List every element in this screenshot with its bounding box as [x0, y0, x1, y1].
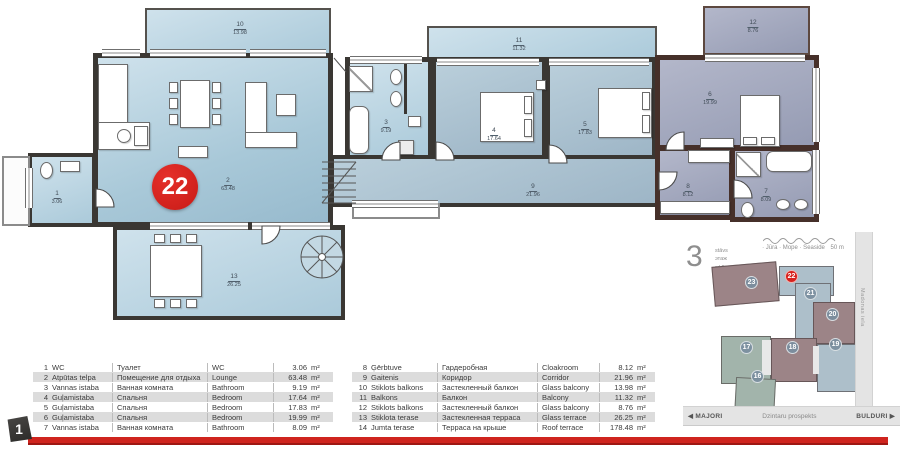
chair — [154, 299, 165, 308]
legend-room-number: 14 — [352, 423, 367, 432]
legend-room-number: 3 — [33, 383, 48, 392]
chair — [212, 82, 221, 93]
room-label-6: 619.99 — [703, 84, 717, 107]
legend-room-number: 4 — [33, 393, 48, 402]
chair — [170, 299, 181, 308]
legend-area-unit: m² — [635, 423, 651, 432]
bathtub-icon — [766, 151, 812, 172]
left-arrow-icon: ◀ — [688, 413, 693, 420]
mm-unit-22[interactable]: 22 — [785, 270, 798, 283]
legend-area-unit: m² — [309, 403, 325, 412]
legend-room-number: 9 — [352, 373, 367, 382]
legend-area-unit: m² — [635, 413, 651, 422]
legend-name-lv: WC — [48, 363, 112, 372]
legend-name-lv: Atpūtas telpa — [48, 373, 112, 382]
legend-row: 12 Stiklots balkons Застекленный балкон … — [352, 402, 655, 412]
pillow — [524, 119, 532, 137]
mm-unit-18[interactable]: 18 — [786, 341, 799, 354]
legend-name-en: Glass balcony — [537, 383, 599, 392]
nightstand — [536, 80, 546, 90]
legend-area: 17.83 — [273, 403, 309, 412]
wardrobe — [688, 150, 730, 163]
room-bedroom-6 — [655, 55, 819, 150]
street-vertical: Madonas iela — [855, 232, 873, 408]
legend-room-number: 8 — [352, 363, 367, 372]
legend-name-en: Glass terrace — [537, 413, 599, 422]
legend-area-unit: m² — [309, 373, 325, 382]
window — [437, 58, 539, 66]
page-tab[interactable]: 1 — [6, 416, 32, 442]
mm-unit-23[interactable]: 23 — [745, 276, 758, 289]
legend-name-lv: Vannas istaba — [48, 383, 112, 392]
mm-unit-20[interactable]: 20 — [826, 308, 839, 321]
legend-name-lv: Jumta terase — [367, 423, 437, 432]
legend-area: 8.76 — [599, 403, 635, 412]
legend-area: 8.09 — [273, 423, 309, 432]
legend-row: 9 Gaitenis Коридор Corridor 21.96 m² — [352, 372, 655, 382]
legend-name-en: Bathroom — [207, 383, 273, 392]
legend-area: 63.48 — [273, 373, 309, 382]
window — [252, 222, 330, 230]
sea-names: · Jūra · Море · Seaside — [762, 245, 825, 251]
legend-name-lv: Guļamistaba — [48, 393, 112, 402]
legend-row: 3 Vannas istaba Ванная комната Bathroom … — [33, 382, 333, 392]
legend-name-lv: Stiklota terase — [367, 413, 437, 422]
legend-name-ru: Коридор — [437, 373, 537, 382]
apartment-number-badge[interactable]: 22 — [152, 164, 198, 210]
window — [352, 200, 438, 208]
floor-plan-page: 13.06 263.48 39.19 417.64 517.83 619.99 … — [0, 0, 900, 452]
window — [812, 68, 820, 142]
mm-gap — [762, 340, 771, 375]
legend-name-ru: Ванная комната — [112, 423, 207, 432]
legend-name-en: Balcony — [537, 393, 599, 402]
pillow — [743, 137, 757, 145]
bidet-icon — [390, 91, 402, 107]
legend-room-number: 6 — [33, 413, 48, 422]
legend-room-number: 13 — [352, 413, 367, 422]
toilet-icon — [741, 202, 754, 218]
legend-name-en: Roof terrace — [537, 423, 599, 432]
legend-name-lv: Vannas istaba — [48, 423, 112, 432]
legend-name-lv: Guļamistaba — [48, 413, 112, 422]
sink-icon — [776, 199, 790, 210]
legend-area-unit: m² — [309, 413, 325, 422]
mm-unit-19[interactable]: 19 — [829, 338, 842, 351]
window — [102, 49, 140, 57]
legend-area-unit: m² — [309, 383, 325, 392]
legend-name-en: Lounge — [207, 373, 273, 382]
room-label-5: 517.83 — [578, 114, 592, 137]
mm-building-19 — [817, 344, 857, 392]
legend-area: 178.48 — [599, 423, 635, 432]
room-label-1: 13.06 — [52, 183, 63, 206]
pillow — [642, 115, 650, 133]
right-arrow-icon: ▶ — [890, 413, 895, 420]
sink-icon — [794, 199, 808, 210]
floor-number: 3 — [686, 242, 703, 272]
legend-area-unit: m² — [635, 383, 651, 392]
legend-row: 14 Jumta terase Терраса на крыше Roof te… — [352, 422, 655, 432]
legend-row: 11 Balkons Балкон Balcony 11.32 m² — [352, 392, 655, 402]
window — [25, 168, 33, 208]
mm-unit-17[interactable]: 17 — [740, 341, 753, 354]
sea-wave-icon — [763, 236, 843, 244]
window — [150, 49, 246, 57]
room-label-4: 417.64 — [487, 120, 501, 143]
legend-table-right: 8 Ģērbtuve Гардеробная Cloakroom 8.12 m²… — [352, 362, 655, 432]
window — [150, 222, 248, 230]
room-label-12: 128.76 — [747, 12, 758, 35]
legend-name-ru: Помещение для отдыха — [112, 373, 207, 382]
chair — [169, 82, 178, 93]
room-label-8: 88.12 — [683, 176, 694, 199]
mm-unit-16[interactable]: 16 — [751, 370, 764, 383]
mm-gap — [813, 346, 819, 374]
chair — [212, 98, 221, 109]
room-label-7: 78.09 — [761, 181, 772, 204]
street-horizontal: ◀ MAJORI Dzintaru prospekts BULDURI ▶ — [683, 406, 900, 426]
legend-room-number: 7 — [33, 423, 48, 432]
mm-unit-21[interactable]: 21 — [804, 287, 817, 300]
legend-row: 1 WC Туалет WC 3.06 m² — [33, 362, 333, 372]
legend-name-ru: Балкон — [437, 393, 537, 402]
window — [250, 49, 326, 57]
legend-room-number: 2 — [33, 373, 48, 382]
legend-name-ru: Застекленный балкон — [437, 383, 537, 392]
legend-table-left: 1 WC Туалет WC 3.06 m² 2 Atpūtas telpa П… — [33, 362, 333, 432]
legend-name-en: Bathroom — [207, 423, 273, 432]
legend-area-unit: m² — [635, 403, 651, 412]
chair — [170, 234, 181, 243]
site-minimap: 3 stāvs этаж rd floor · Jūra · Море · Se… — [683, 228, 900, 424]
legend-area: 26.25 — [599, 413, 635, 422]
legend-area-unit: m² — [309, 423, 325, 432]
legend-name-en: Bedroom — [207, 413, 273, 422]
partition-wall — [404, 64, 407, 114]
legend-name-lv: Stiklots balkons — [367, 403, 437, 412]
pillow — [524, 96, 532, 114]
toilet-icon — [40, 162, 53, 179]
stove-icon — [134, 126, 148, 146]
legend-name-en: Bedroom — [207, 393, 273, 402]
terrace-table — [150, 245, 202, 297]
legend-area: 8.12 — [599, 363, 635, 372]
floor-caption-ru: этаж — [715, 255, 732, 263]
legend-name-en: Corridor — [537, 373, 599, 382]
legend-area-unit: m² — [309, 363, 325, 372]
room-label-10: 1013.98 — [233, 14, 247, 37]
legend-area-unit: m² — [635, 363, 651, 372]
legend-area: 13.98 — [599, 383, 635, 392]
legend-name-ru: Спальня — [112, 393, 207, 402]
room-label-9: 921.96 — [526, 176, 540, 199]
toilet-icon — [390, 69, 402, 85]
legend-room-number: 5 — [33, 403, 48, 412]
legend-room-number: 12 — [352, 403, 367, 412]
legend-row: 2 Atpūtas telpa Помещение для отдыха Lou… — [33, 372, 333, 382]
street-left-label[interactable]: ◀ MAJORI — [688, 412, 723, 420]
legend-name-en: Cloakroom — [537, 363, 599, 372]
legend-name-ru: Гардеробная — [437, 363, 537, 372]
legend-name-en: WC — [207, 363, 273, 372]
legend-name-lv: Guļamistaba — [48, 403, 112, 412]
pillow — [761, 137, 775, 145]
legend-name-en: Bedroom — [207, 403, 273, 412]
dining-table — [180, 80, 210, 128]
floor-caption-lv: stāvs — [715, 247, 732, 255]
legend-name-ru: Терраса на крыше — [437, 423, 537, 432]
sink-icon — [408, 116, 421, 127]
sea-distance: 50 m — [831, 245, 844, 251]
legend-room-number: 1 — [33, 363, 48, 372]
street-vertical-label: Madonas iela — [859, 288, 865, 327]
legend-name-ru: Застекленная терраса — [437, 413, 537, 422]
legend-row: 5 Guļamistaba Спальня Bedroom 17.83 m² — [33, 402, 333, 412]
legend-name-lv: Balkons — [367, 393, 437, 402]
wardrobe — [660, 201, 730, 214]
legend-name-ru: Застекленный балкон — [437, 403, 537, 412]
sea-label: · Jūra · Море · Seaside 50 m — [743, 245, 863, 251]
chair — [169, 114, 178, 125]
street-right-label[interactable]: BULDURI ▶ — [856, 412, 895, 420]
window — [350, 56, 422, 64]
legend-room-number: 11 — [352, 393, 367, 402]
washer-icon — [398, 140, 414, 155]
chair — [212, 114, 221, 125]
legend-name-ru: Туалет — [112, 363, 207, 372]
chair — [186, 234, 197, 243]
shower-icon — [736, 152, 761, 177]
window — [549, 58, 649, 66]
legend-area: 17.64 — [273, 393, 309, 402]
legend-room-number: 10 — [352, 383, 367, 392]
legend-row: 7 Vannas istaba Ванная комната Bathroom … — [33, 422, 333, 432]
legend-row: 8 Ģērbtuve Гардеробная Cloakroom 8.12 m² — [352, 362, 655, 372]
legend-area-unit: m² — [635, 393, 651, 402]
legend-row: 13 Stiklota terase Застекленная терраса … — [352, 412, 655, 422]
legend-name-ru: Спальня — [112, 413, 207, 422]
legend-name-ru: Ванная комната — [112, 383, 207, 392]
room-label-3: 39.19 — [381, 112, 392, 135]
room-label-11: 1111.32 — [512, 30, 525, 53]
legend-name-lv: Gaitenis — [367, 373, 437, 382]
room-label-2: 263.48 — [221, 170, 235, 193]
legend-name-lv: Ģērbtuve — [367, 363, 437, 372]
kitchen-sink-icon — [117, 129, 131, 143]
legend-area: 19.99 — [273, 413, 309, 422]
legend-area: 11.32 — [599, 393, 635, 402]
legend-row: 6 Guļamistaba Спальня Bedroom 19.99 m² — [33, 412, 333, 422]
room-label-13: 1326.25 — [227, 266, 241, 289]
red-divider-bar — [28, 437, 888, 445]
window — [705, 54, 805, 62]
legend-area: 9.19 — [273, 383, 309, 392]
window — [812, 150, 820, 214]
legend-name-ru: Спальня — [112, 403, 207, 412]
chair — [169, 98, 178, 109]
shower-icon — [349, 66, 373, 92]
sink-icon — [60, 161, 80, 172]
legend-row: 10 Stiklots balkons Застекленный балкон … — [352, 382, 655, 392]
legend-area-unit: m² — [635, 373, 651, 382]
media-unit — [178, 146, 208, 158]
legend-area: 21.96 — [599, 373, 635, 382]
legend-name-lv: Stiklots balkons — [367, 383, 437, 392]
bathtub-icon — [349, 106, 369, 154]
legend-row: 4 Guļamistaba Спальня Bedroom 17.64 m² — [33, 392, 333, 402]
street-center-label: Dzintaru prospekts — [762, 413, 816, 420]
chair — [186, 299, 197, 308]
legend-area: 3.06 — [273, 363, 309, 372]
sofa — [245, 132, 297, 148]
armchair — [276, 94, 296, 116]
dresser — [700, 138, 734, 148]
kitchen-counter — [98, 64, 128, 124]
legend-area-unit: m² — [309, 393, 325, 402]
legend-name-en: Glass balcony — [537, 403, 599, 412]
pillow — [642, 92, 650, 110]
chair — [154, 234, 165, 243]
